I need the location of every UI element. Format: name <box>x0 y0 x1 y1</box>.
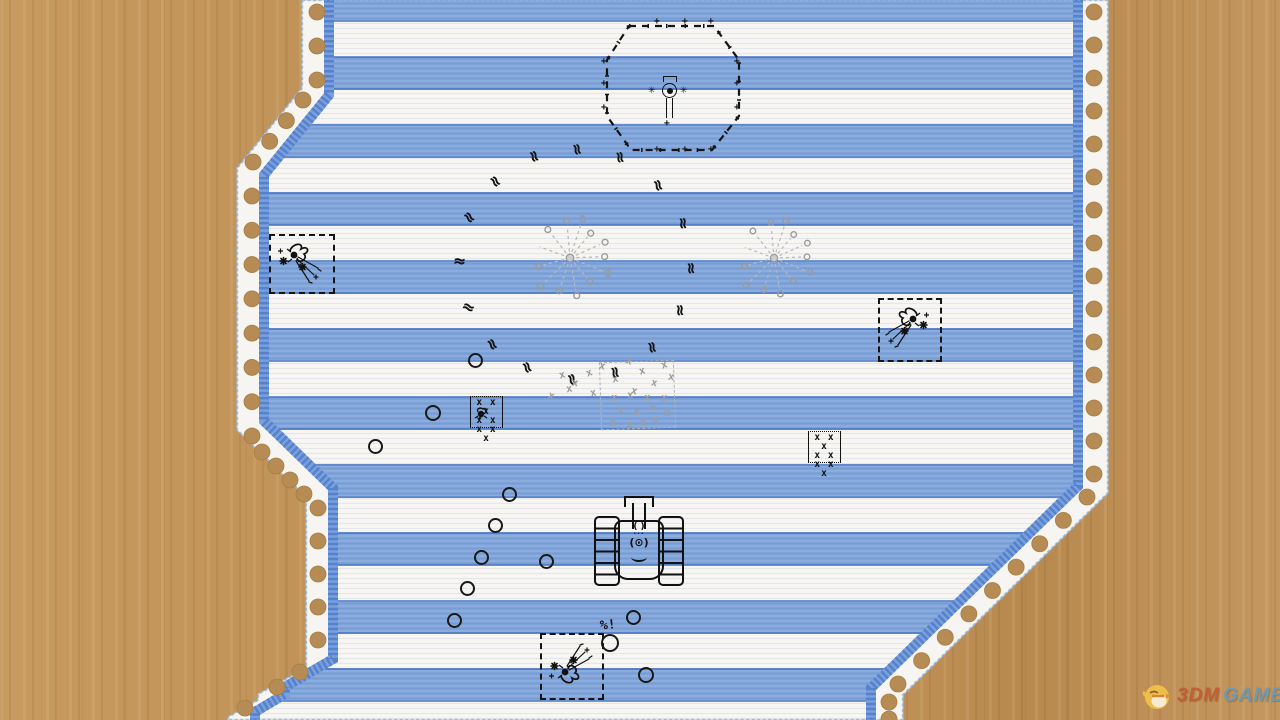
barrel-tip-mark: + <box>664 120 670 128</box>
smoke-squiggle: ≈ <box>461 208 478 225</box>
hex-edge-plus: + <box>601 104 607 112</box>
watermark-game: GAME <box>1223 685 1280 707</box>
faded-blast <box>526 214 614 307</box>
smoke-squiggle: ≈ <box>685 261 698 275</box>
bug-doodle <box>472 404 491 423</box>
smoke-squiggle: ≈ <box>460 299 476 315</box>
faded-mine-x: x <box>571 378 579 389</box>
faded-mine-x: x <box>649 402 656 412</box>
explosion-doodle <box>880 300 936 356</box>
shell-ring <box>425 405 441 421</box>
hex-outpost-zone[interactable]: ✳ ✳ + ++++++++++++ <box>596 16 746 163</box>
watermark-3dm: 3DM <box>1177 685 1220 707</box>
watermark: 3DM GAME <box>1142 680 1280 712</box>
explosion-doodle <box>271 236 327 292</box>
faded-mine-x: x <box>652 414 659 424</box>
faded-mine-x: x <box>565 384 573 395</box>
smoke-squiggle: ≈ <box>677 216 690 230</box>
mine-row: x x x <box>471 425 502 443</box>
faded-blast-doodle <box>732 216 816 300</box>
hex-edge-plus: + <box>734 58 740 66</box>
hex-edge-plus: + <box>601 80 607 88</box>
smoke-squiggle: ≈ <box>484 336 501 353</box>
faded-mine-x: x <box>617 405 624 415</box>
shell-ring <box>502 487 517 502</box>
game-canvas[interactable]: ✳ ✳ + ++++++++++++ ( ) ··· (⊙) %! 3DM <box>0 0 1280 720</box>
smoke-squiggle: ≈ <box>613 150 627 164</box>
faded-mine-x: x <box>584 367 593 379</box>
shell-ring <box>626 610 641 625</box>
faded-mine-x: x <box>640 418 647 428</box>
smoke-squiggle: ≈ <box>570 141 585 156</box>
smoke-squiggle: ≈ <box>519 359 535 375</box>
hex-edge-plus: + <box>708 146 714 154</box>
shell-ring <box>468 353 483 368</box>
explosion-doodle <box>542 635 598 691</box>
hex-edge-plus: + <box>708 18 714 26</box>
faded-mine-x: x <box>626 419 633 429</box>
hull-skirt <box>631 552 647 562</box>
hex-edge-plus: + <box>682 146 688 154</box>
shell-ring <box>488 518 503 533</box>
damage-indicator: %! <box>599 617 616 634</box>
smoke-squiggle: ≈ <box>487 172 504 189</box>
player-tank[interactable]: ( ) ··· (⊙) <box>594 494 682 584</box>
faded-mine-x: x <box>610 418 617 428</box>
wreck-site <box>878 298 942 362</box>
smoke-squiggle: ≈ <box>645 339 660 354</box>
game-screenshot: { "colors": { "wood": "#c19259", "paper"… <box>0 0 1280 720</box>
hex-edge-plus: + <box>734 104 740 112</box>
smoke-squiggle: ≈ <box>650 177 666 193</box>
chick-logo-icon <box>1142 680 1174 712</box>
faded-mine-x: x <box>546 390 555 402</box>
faded-blast <box>732 216 816 305</box>
hex-edge-plus: + <box>682 18 688 26</box>
smoke-squiggle: ≈ <box>674 303 687 317</box>
turret-wing-right: ✳ <box>680 86 688 96</box>
mine-row: x x x <box>809 460 840 478</box>
turret-wing-left: ✳ <box>648 86 656 96</box>
hex-edge-plus: + <box>601 58 607 66</box>
turret-rear-bracket <box>663 76 677 82</box>
turret-core <box>667 88 673 94</box>
wreck-site <box>540 633 604 700</box>
mine-row: x x x <box>809 433 840 451</box>
shell-ring <box>447 613 462 628</box>
faded-mine-x: x <box>661 393 668 403</box>
turret-barrel <box>666 98 673 118</box>
wreck-site <box>269 234 335 294</box>
faded-mine-x: x <box>663 408 670 418</box>
shell-ring <box>539 554 554 569</box>
shell-ring <box>638 667 654 683</box>
bug-doodle-wrap <box>472 404 491 425</box>
hex-edge-plus: + <box>734 80 740 88</box>
shell-ring <box>368 439 383 454</box>
minefield-box[interactable]: x x xx xx x x <box>808 431 841 463</box>
hull-turret: (⊙) <box>616 537 662 549</box>
faded-blast-doodle <box>526 214 614 302</box>
faded-mine-x: x <box>611 393 618 403</box>
tank-hull: ( ) ··· (⊙) <box>614 520 664 580</box>
faded-mine-x: x <box>558 369 567 380</box>
shell-ring <box>460 581 475 596</box>
faded-mine-x: x <box>589 387 597 398</box>
shell-ring <box>474 550 489 565</box>
faded-mine-x: x <box>633 407 640 417</box>
hex-edge-plus: + <box>654 18 660 26</box>
smoke-squiggle: ≈ <box>453 254 467 267</box>
minefield-box[interactable]: x x xx xx x x <box>470 396 503 428</box>
smoke-squiggle: ≈ <box>526 148 542 164</box>
hex-edge-plus: + <box>654 146 660 154</box>
